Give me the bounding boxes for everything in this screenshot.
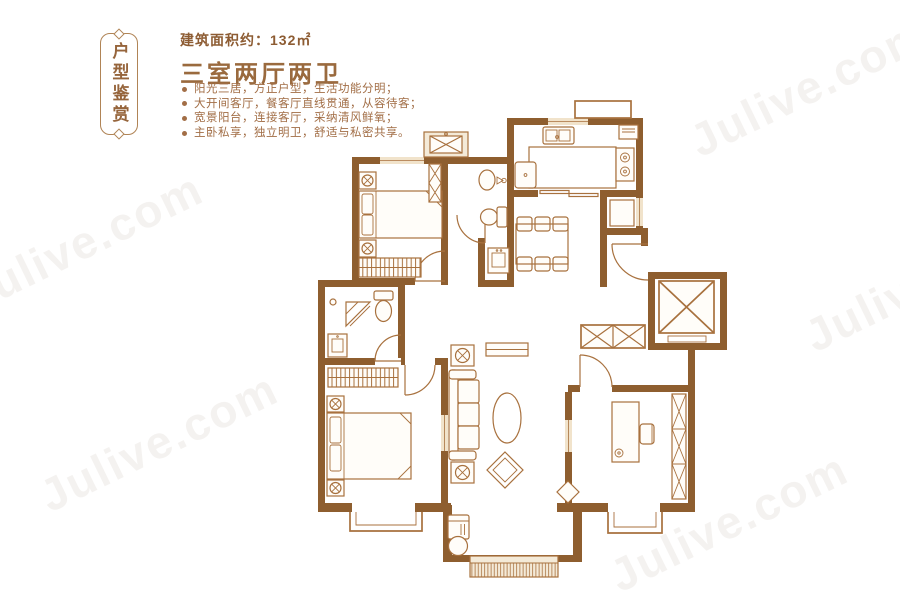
kitchen-window-icon — [548, 118, 588, 125]
entry-door-icon — [612, 244, 648, 280]
hall-window-icon — [441, 415, 448, 451]
wardrobe-icon — [328, 368, 398, 387]
wardrobe-icon — [359, 258, 421, 277]
sink-cabinet-icon — [488, 248, 509, 273]
dining-chairs-icon — [517, 217, 568, 271]
floorplan-drawing — [0, 0, 900, 600]
shower-icon — [330, 299, 370, 326]
bay-window-icon — [608, 512, 662, 533]
foyer — [581, 281, 714, 348]
nightstand-lamp-icon — [327, 396, 344, 412]
washing-machine-icon — [448, 515, 469, 556]
plant-table-icon — [451, 462, 474, 483]
sofa-icon — [449, 370, 479, 460]
kitchen-sink-icon — [543, 127, 574, 144]
tv-cabinet-icon — [486, 343, 528, 356]
bedroom2-door-icon — [405, 365, 435, 395]
rug-icon — [487, 452, 523, 488]
living-window-icon — [565, 420, 572, 452]
bathroom2-door-icon — [375, 335, 401, 361]
nightstand-lamp-icon — [327, 480, 344, 496]
kitchen — [515, 101, 638, 188]
stove-icon — [616, 148, 634, 181]
toilet-icon — [481, 207, 508, 227]
sink-cabinet-icon — [328, 334, 347, 357]
elevator-icon — [659, 281, 714, 342]
floor-lamp-icon — [557, 481, 579, 503]
washbasin-icon — [479, 170, 506, 190]
living-room — [449, 343, 579, 503]
nightstand-lamp-icon — [359, 240, 376, 257]
kitchen-flue-icon — [575, 101, 631, 118]
cabinet-icon — [610, 200, 634, 226]
plant-table-icon — [451, 345, 474, 366]
microwave-icon — [619, 125, 638, 139]
bedroom1-window-icon — [380, 157, 424, 164]
desk-icon — [612, 402, 639, 462]
double-bed-icon — [327, 413, 411, 479]
toilet-icon — [374, 291, 393, 322]
dining-window-icon — [636, 198, 643, 226]
closet-icon — [429, 164, 441, 202]
bedroom1 — [359, 132, 468, 277]
study-door-icon — [580, 355, 612, 387]
bay-window-icon — [350, 512, 422, 531]
balcony-window-icon — [470, 556, 558, 577]
kitchen-sliding-door-icon — [540, 191, 598, 197]
ac-platform-icon — [581, 325, 645, 348]
ac-unit-icon — [424, 132, 468, 157]
bathroom2 — [328, 291, 393, 357]
kitchen-counter-icon — [529, 147, 616, 188]
desk-chair-icon — [640, 424, 654, 444]
study-room — [608, 394, 686, 533]
coffee-table-icon — [493, 393, 521, 443]
fridge-icon — [515, 162, 536, 188]
balcony — [448, 515, 558, 577]
wardrobe-icon — [672, 394, 686, 499]
nightstand-lamp-icon — [359, 172, 376, 189]
